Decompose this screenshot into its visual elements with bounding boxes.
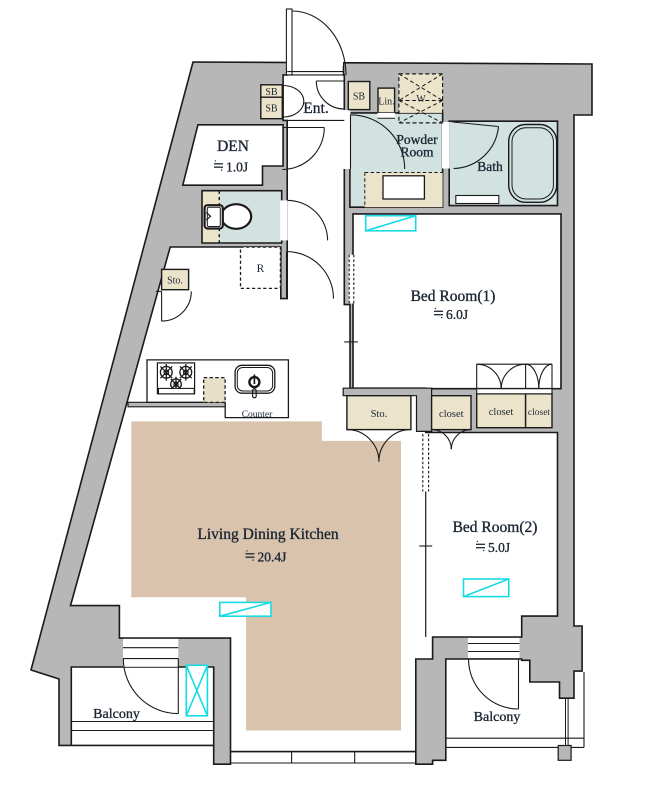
svg-text:Sto.: Sto. [167, 276, 183, 287]
svg-text:Ent.: Ent. [303, 100, 328, 117]
svg-text:Bed Room(2): Bed Room(2) [453, 519, 538, 536]
svg-text:Balcony: Balcony [474, 710, 521, 725]
svg-text:Lin.: Lin. [378, 97, 394, 108]
svg-text:R: R [257, 263, 265, 275]
svg-text:DEN: DEN [217, 138, 249, 155]
svg-text:closet: closet [528, 408, 551, 418]
svg-text:SB: SB [353, 92, 366, 103]
svg-text:Bath: Bath [477, 159, 503, 174]
svg-text:SB: SB [265, 87, 278, 98]
svg-text:Bed Room(1): Bed Room(1) [411, 288, 496, 305]
svg-text:20.4J: 20.4J [258, 550, 287, 565]
svg-text:1.0J: 1.0J [226, 160, 248, 175]
svg-text:5.0J: 5.0J [488, 540, 510, 555]
svg-text:Sto.: Sto. [371, 409, 388, 420]
svg-text:Room: Room [400, 145, 434, 160]
svg-text:W: W [416, 94, 426, 105]
svg-text:closet: closet [489, 407, 514, 418]
svg-text:Balcony: Balcony [93, 707, 140, 722]
svg-text:closet: closet [439, 409, 464, 420]
svg-text:SB: SB [265, 104, 278, 115]
svg-text:Living Dining Kitchen: Living Dining Kitchen [197, 526, 338, 543]
svg-text:Counter: Counter [242, 410, 273, 420]
svg-text:6.0J: 6.0J [446, 307, 468, 322]
